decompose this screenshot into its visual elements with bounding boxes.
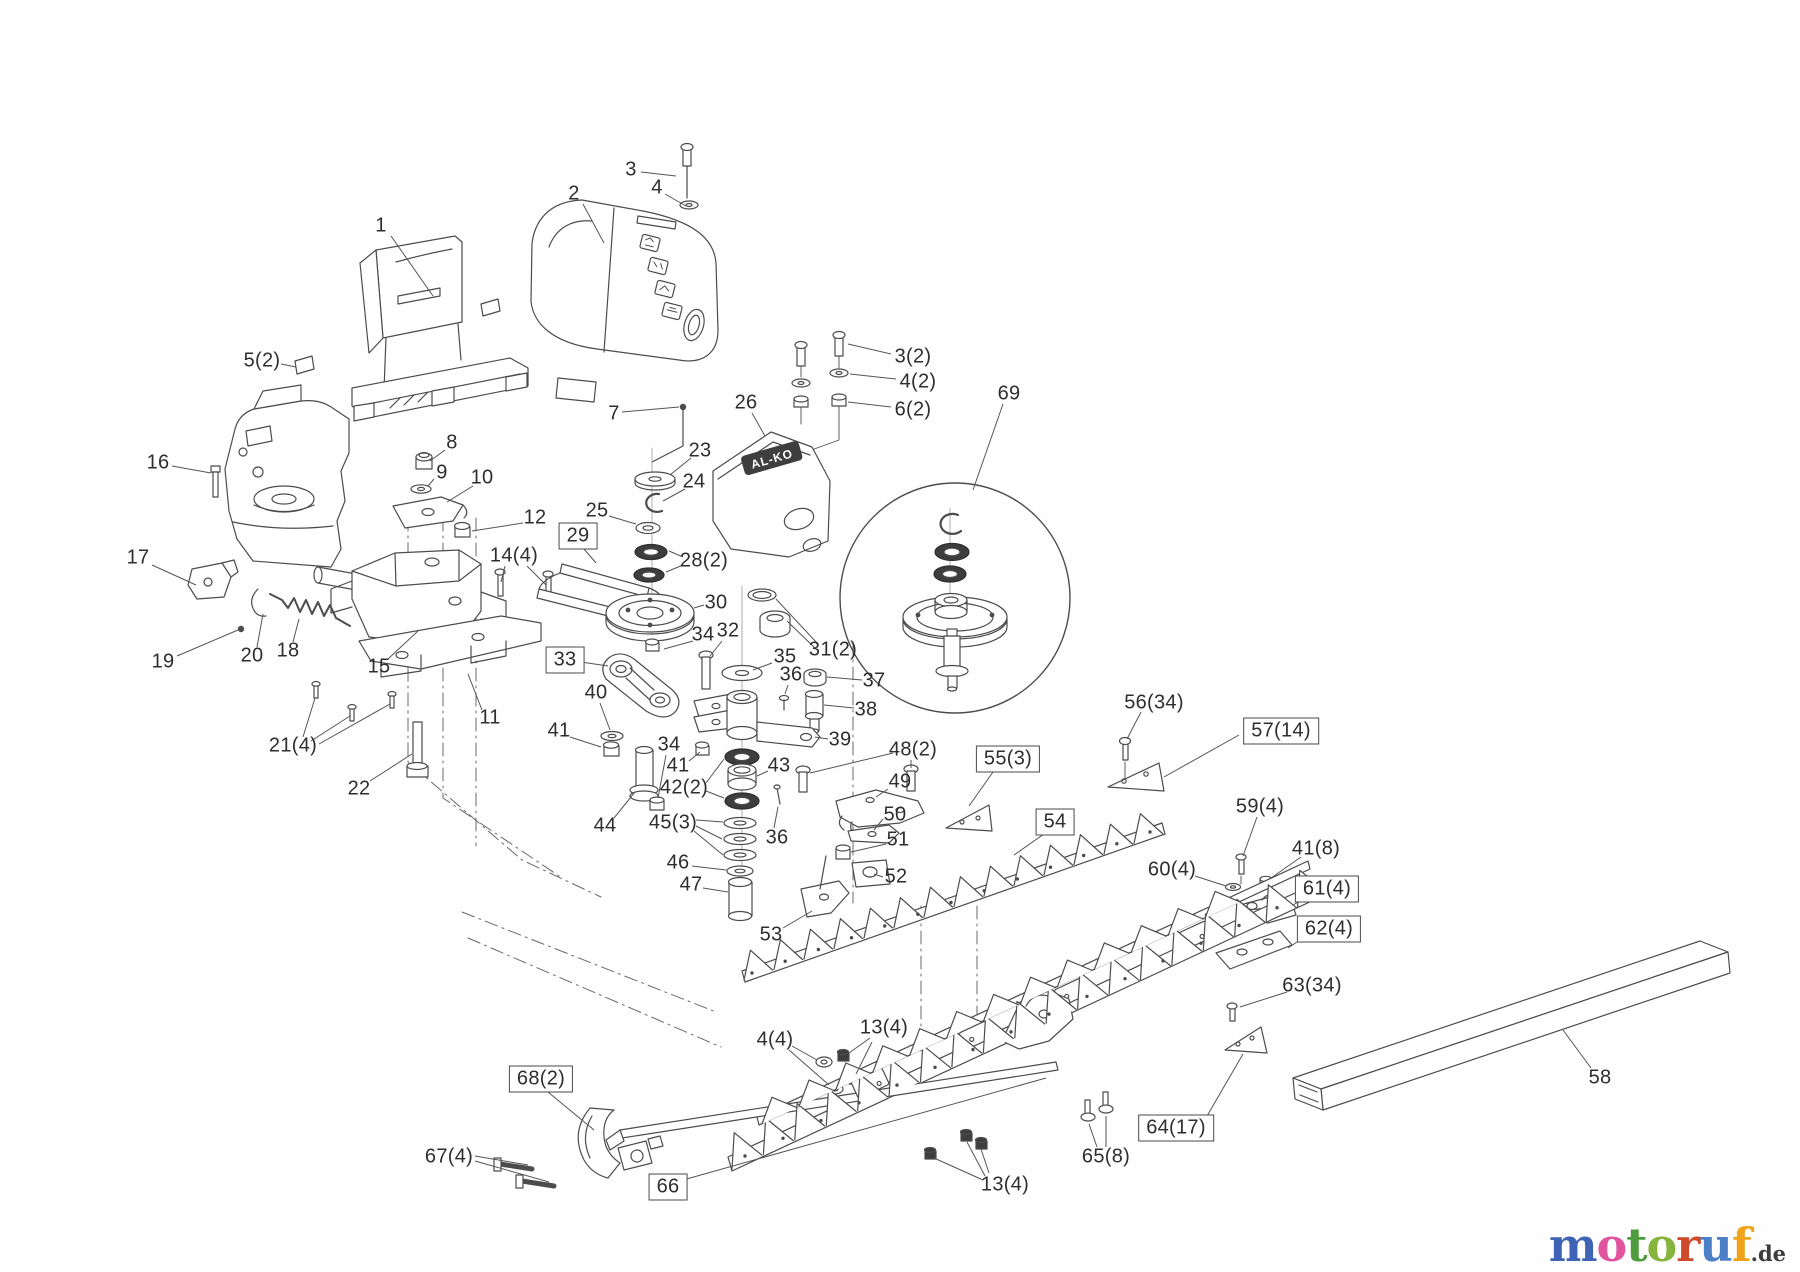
leader-line bbox=[706, 791, 724, 798]
fastener-3-4-top bbox=[680, 144, 698, 210]
leader-line bbox=[774, 807, 778, 828]
leader-line bbox=[666, 565, 683, 572]
leader-line bbox=[694, 605, 704, 608]
leader-line bbox=[1164, 735, 1239, 777]
leader-line bbox=[1195, 876, 1226, 886]
leader-line bbox=[706, 759, 724, 783]
leader-line bbox=[783, 911, 812, 928]
leader-line bbox=[1240, 992, 1287, 1007]
leader-line bbox=[658, 755, 666, 798]
blade-head-bracket bbox=[796, 765, 924, 917]
logo-letter: o bbox=[1646, 1218, 1676, 1272]
leader-line bbox=[670, 458, 691, 475]
leader-line bbox=[172, 466, 211, 473]
leader-line bbox=[472, 523, 523, 531]
leader-line bbox=[689, 752, 700, 761]
swivel-stack bbox=[694, 586, 826, 921]
logo-letter: o bbox=[1597, 1218, 1627, 1272]
leader-line bbox=[570, 737, 601, 747]
leader-line bbox=[757, 771, 768, 776]
leader-line bbox=[614, 792, 635, 818]
leader-line bbox=[669, 551, 683, 557]
leader-line bbox=[849, 1038, 870, 1053]
leader-line bbox=[281, 364, 296, 367]
leader-line bbox=[824, 705, 854, 708]
construction-lines bbox=[408, 518, 977, 1056]
leader-line bbox=[696, 826, 722, 839]
leader-line bbox=[177, 630, 238, 656]
leader-line bbox=[692, 866, 726, 870]
leader-line bbox=[428, 479, 434, 486]
part-1-console-bracket bbox=[295, 236, 528, 421]
leader-line bbox=[848, 402, 891, 407]
leader-line bbox=[468, 674, 482, 710]
left-drive-assembly bbox=[225, 385, 349, 567]
leader-line bbox=[370, 754, 412, 781]
leader-line bbox=[1243, 817, 1257, 856]
leader-line bbox=[447, 486, 473, 502]
leader-line bbox=[981, 1149, 989, 1173]
fasteners-3-4-6 bbox=[792, 332, 848, 453]
belt-29 bbox=[560, 564, 649, 597]
part-26-cover: AL-KO bbox=[713, 432, 830, 557]
leader-line bbox=[792, 1046, 817, 1060]
leader-line bbox=[810, 753, 893, 773]
leader-line bbox=[600, 703, 610, 730]
part-67-screws bbox=[494, 1158, 554, 1188]
logo-suffix: .de bbox=[1751, 1241, 1786, 1266]
logo-letter: r bbox=[1676, 1218, 1699, 1272]
leader-line bbox=[1127, 712, 1141, 739]
leader-line bbox=[609, 516, 636, 524]
leader-line bbox=[850, 374, 896, 379]
leader-line bbox=[1089, 1124, 1097, 1147]
leader-line bbox=[665, 194, 686, 206]
part-20-clip bbox=[252, 589, 266, 616]
leader-line bbox=[430, 450, 445, 461]
leader-line bbox=[622, 407, 679, 412]
leader-line bbox=[1014, 834, 1044, 855]
leader-line bbox=[851, 844, 886, 852]
leader-line bbox=[1563, 1030, 1591, 1068]
leader-line bbox=[753, 663, 772, 670]
part-5-clip bbox=[295, 356, 314, 374]
part-2-cover bbox=[531, 200, 718, 402]
part-33-conrod bbox=[603, 654, 679, 717]
part-17-bracket bbox=[188, 560, 238, 599]
motoruf-logo: motoruf.de bbox=[1549, 1222, 1786, 1268]
leader-line bbox=[973, 404, 1003, 490]
leader-line bbox=[710, 641, 722, 656]
leader-line bbox=[785, 685, 788, 694]
leader-line bbox=[787, 621, 817, 650]
logo-letter: t bbox=[1626, 1218, 1646, 1272]
leader-line bbox=[584, 549, 596, 563]
leader-line bbox=[694, 831, 723, 855]
logo-letter: u bbox=[1699, 1218, 1731, 1272]
leader-line bbox=[969, 772, 993, 806]
leader-line bbox=[1207, 1054, 1243, 1116]
leader-line bbox=[752, 413, 765, 436]
leader-line bbox=[827, 677, 862, 680]
parts-diagram-page: AL-KO bbox=[0, 0, 1800, 1272]
exploded-parts-drawing: AL-KO bbox=[0, 0, 1800, 1272]
leader-line bbox=[703, 888, 728, 892]
part-53-foot bbox=[801, 881, 849, 917]
part-16-screw bbox=[211, 466, 220, 497]
leader-line bbox=[257, 614, 263, 647]
leader-line bbox=[664, 641, 693, 649]
leader-line bbox=[663, 489, 685, 501]
leader-line bbox=[152, 565, 196, 585]
part-18-spring bbox=[270, 594, 350, 626]
part-19-pin bbox=[238, 626, 243, 631]
part-58-square-tube bbox=[1293, 941, 1730, 1110]
leader-line bbox=[696, 820, 723, 822]
logo-letter: m bbox=[1549, 1218, 1597, 1272]
leader-line bbox=[848, 344, 891, 354]
part-11-bracket bbox=[331, 550, 541, 677]
part-7-pin bbox=[652, 404, 686, 462]
leader-line bbox=[934, 1158, 983, 1180]
pulley-stack bbox=[537, 448, 694, 651]
leader-line bbox=[641, 172, 676, 176]
detail-circle-69 bbox=[840, 483, 1070, 713]
leader-line bbox=[293, 619, 299, 642]
logo-letter: f bbox=[1732, 1218, 1751, 1272]
leader-line bbox=[303, 698, 315, 737]
